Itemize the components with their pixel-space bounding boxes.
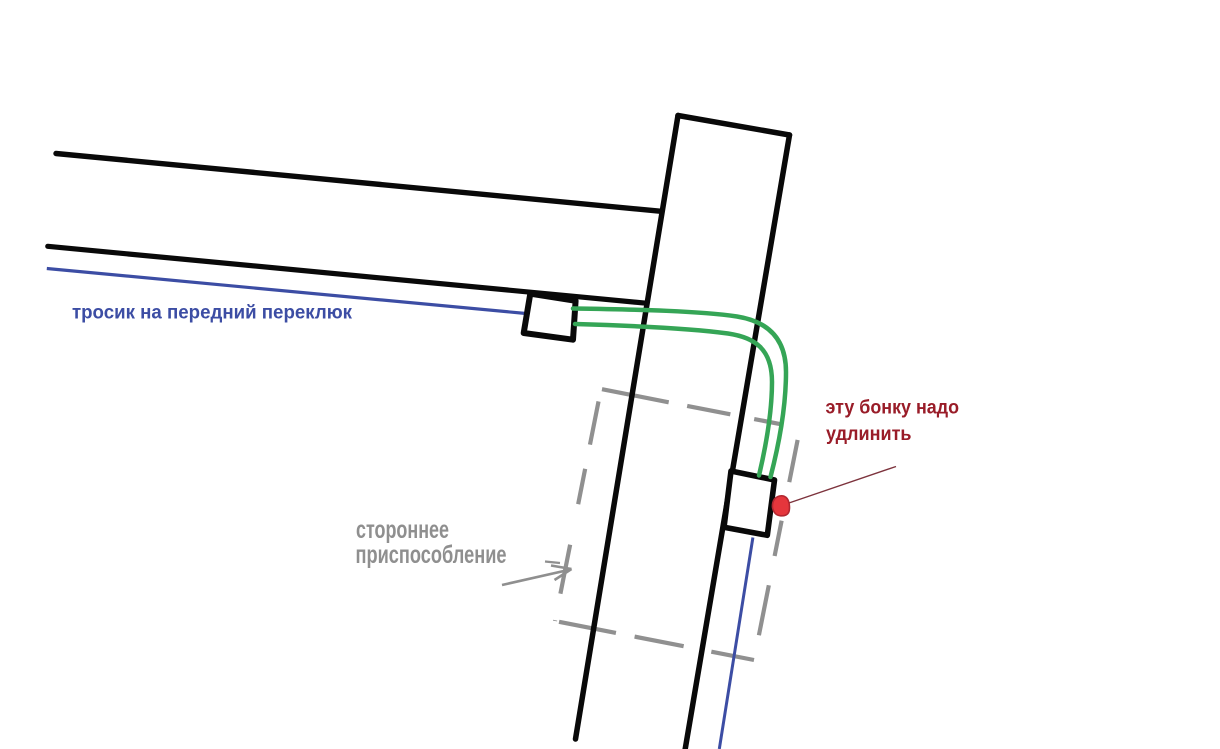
svg-text:удлинить: удлинить	[826, 423, 912, 445]
svg-text:стороннее: стороннее	[356, 516, 449, 544]
svg-text:эту бонку надо: эту бонку надо	[826, 397, 960, 419]
svg-text:приспособление: приспособление	[356, 541, 507, 569]
svg-text:тросик на передний переклюк: тросик на передний переклюк	[72, 301, 352, 323]
